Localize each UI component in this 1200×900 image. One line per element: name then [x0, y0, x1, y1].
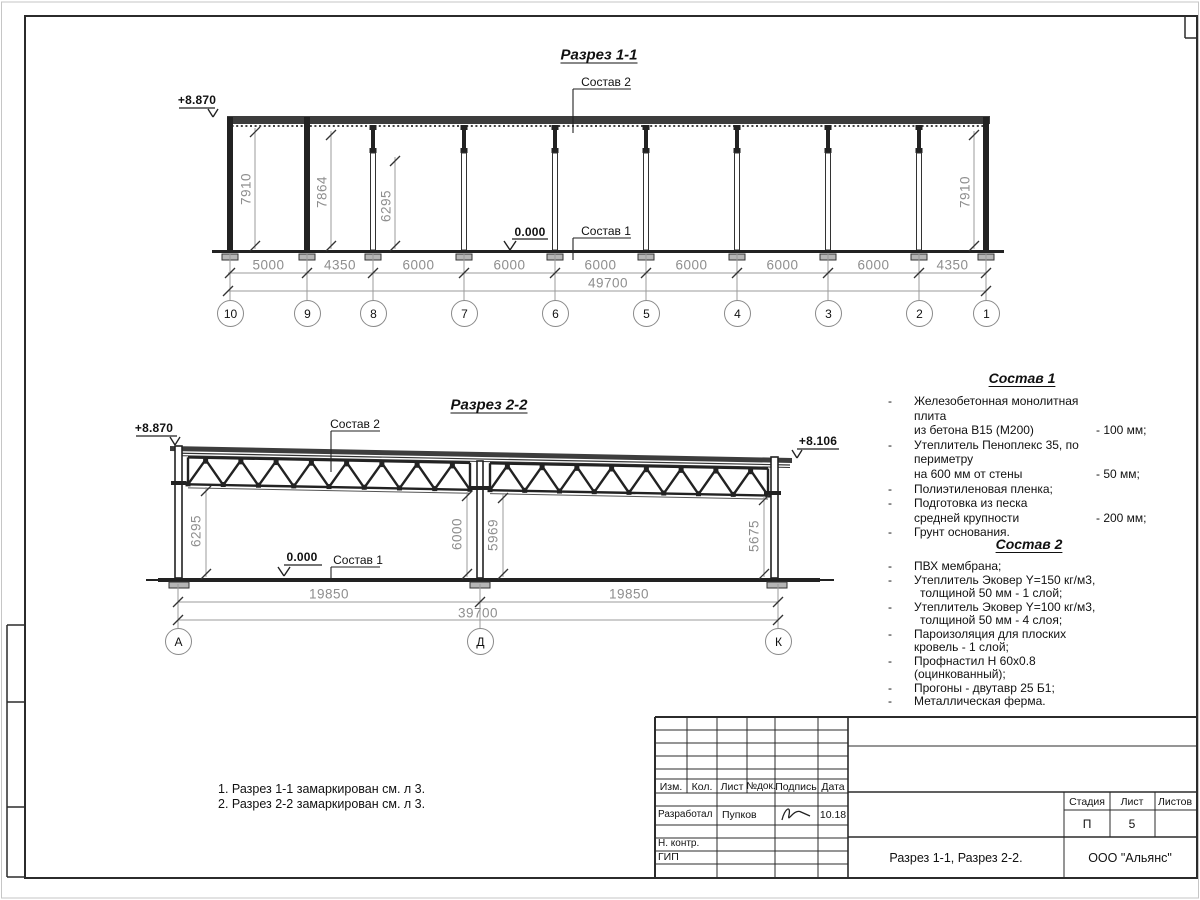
sostav-value [1110, 560, 1174, 574]
sostav-row: -Прогоны - двутавр 25 Б1; [884, 682, 1174, 696]
note-line: 2. Разрез 2-2 замаркирован см. л 3. [218, 797, 425, 812]
sostav-row: -Утеплитель Пеноплекс 35, по периметру [884, 438, 1160, 467]
grid-bubble: 9 [294, 300, 321, 327]
dim-vertical: 7910 [958, 176, 972, 208]
dim-total: 49700 [588, 276, 628, 290]
sostav1-title: Состав 1 [884, 370, 1160, 386]
section2-zero-level: 0.000 [286, 551, 317, 563]
tb-role-developed: Разработал [658, 810, 712, 820]
sostav-value [1096, 438, 1160, 467]
tb-col-ndok: №док. [746, 782, 775, 792]
dim-value: 6000 [675, 258, 707, 272]
sostav-dash: - [884, 394, 914, 423]
grid-bubble: Д [467, 628, 494, 655]
sostav-value [1110, 614, 1174, 628]
section2-elevation-left: +8.870 [135, 422, 173, 434]
sostav-value [1110, 574, 1174, 588]
dim-value: 6000 [766, 258, 798, 272]
tb-sheet-value: 5 [1129, 818, 1136, 830]
grid-bubble: 3 [815, 300, 842, 327]
sostav-value: - 100 мм; [1096, 423, 1160, 438]
sostav-text: Профнастил Н 60х0.8 (оцинкованный); [914, 655, 1110, 682]
sostav-text: Железобетонная монолитная плита [914, 394, 1096, 423]
section2-sostav1-label: Состав 1 [333, 554, 383, 566]
sostav2-block: Состав 2 -ПВХ мембрана;-Утеплитель Экове… [884, 536, 1174, 709]
sostav-value [1110, 655, 1174, 682]
tb-role-gip: ГИП [658, 852, 679, 863]
dim-value: 19850 [309, 587, 349, 601]
tb-col-kol: Кол. [692, 782, 713, 793]
sostav-dash: - [884, 655, 914, 682]
sostav-text: толщиной 50 мм - 1 слой; [914, 587, 1110, 601]
dim-vertical: 6295 [379, 190, 393, 222]
grid-bubble: 8 [360, 300, 387, 327]
dim-vertical: 5675 [747, 520, 761, 552]
sostav-text: Металлическая ферма. [914, 695, 1110, 709]
sostav-row: -Профнастил Н 60х0.8 (оцинкованный); [884, 655, 1174, 682]
sostav-value [1110, 601, 1174, 615]
dim-value: 4350 [324, 258, 356, 272]
sostav-text: Прогоны - двутавр 25 Б1; [914, 682, 1110, 696]
tb-doc-title: Разрез 1-1, Разрез 2-2. [889, 852, 1022, 865]
sostav-dash: - [884, 682, 914, 696]
sostav-dash: - [884, 601, 914, 615]
tb-sheet-label: Лист [1121, 797, 1144, 808]
sostav-dash [884, 587, 914, 601]
sostav-row: -Пароизоляция для плоских кровель - 1 сл… [884, 628, 1174, 655]
sostav-row: -Железобетонная монолитная плита [884, 394, 1160, 423]
tb-role-ncontr: Н. контр. [658, 839, 699, 849]
dim-vertical: 7910 [239, 173, 253, 205]
dim-value: 6000 [584, 258, 616, 272]
sostav-text: Пароизоляция для плоских кровель - 1 сло… [914, 628, 1110, 655]
sostav-dash: - [884, 496, 914, 511]
tb-company: ООО "Альянс" [1088, 852, 1172, 865]
sostav1-rows: -Железобетонная монолитная плитаиз бетон… [884, 394, 1160, 540]
tb-sheets-label: Листов [1158, 797, 1192, 808]
grid-bubble: К [765, 628, 792, 655]
dim-vertical: 5969 [486, 519, 500, 551]
sostav-value [1110, 682, 1174, 696]
sostav-value [1110, 695, 1174, 709]
sostav-value [1096, 496, 1160, 511]
dim-vertical: 7864 [315, 176, 329, 208]
tb-col-list: Лист [721, 782, 744, 793]
sostav-row: -Металлическая ферма. [884, 695, 1174, 709]
sostav-text: средней крупности [914, 511, 1096, 526]
dim-value: 6000 [493, 258, 525, 272]
grid-bubble: 6 [542, 300, 569, 327]
section1-elevation-left: +8.870 [178, 94, 216, 106]
dim-value: 6000 [402, 258, 434, 272]
dim-value: 19850 [609, 587, 649, 601]
sostav-value [1110, 628, 1174, 655]
sostav-row: -Утеплитель Эковер Y=100 кг/м3, [884, 601, 1174, 615]
section2-title: Разрез 2-2 [450, 398, 527, 413]
tb-developer: Пупков [722, 810, 757, 821]
sostav-dash: - [884, 438, 914, 467]
sostav-dash: - [884, 695, 914, 709]
dim-total: 39700 [458, 606, 498, 620]
tb-col-podpis: Подпись [775, 782, 817, 793]
sostav-text: Полиэтиленовая пленка; [914, 482, 1096, 497]
section1-title: Разрез 1-1 [560, 48, 637, 63]
note-line: 1. Разрез 1-1 замаркирован см. л 3. [218, 782, 425, 797]
sostav-value [1110, 587, 1174, 601]
section2-elevation-right: +8.106 [799, 435, 837, 447]
grid-bubble: 5 [633, 300, 660, 327]
drawing-sheet: Разрез 1-1 Разрез 2-2 +8.870 0.000 Соста… [0, 0, 1200, 900]
grid-bubble: 10 [217, 300, 244, 327]
dim-vertical: 6295 [189, 515, 203, 547]
sostav1-block: Состав 1 -Железобетонная монолитная плит… [884, 370, 1160, 540]
grid-bubble: 1 [973, 300, 1000, 327]
section1-zero-level: 0.000 [514, 226, 545, 238]
sostav-row: на 600 мм от стены- 50 мм; [884, 467, 1160, 482]
labels-layer: Разрез 1-1 Разрез 2-2 +8.870 0.000 Соста… [0, 0, 1200, 900]
sostav-text: Утеплитель Эковер Y=150 кг/м3, [914, 574, 1110, 588]
sostav-text: толщиной 50 мм - 4 слоя; [914, 614, 1110, 628]
dim-value: 6000 [857, 258, 889, 272]
tb-date: 10.18 [820, 810, 846, 821]
sostav-text: из бетона В15 (М200) [914, 423, 1096, 438]
sostav-dash: - [884, 628, 914, 655]
grid-bubble: А [165, 628, 192, 655]
sostav-value [1096, 394, 1160, 423]
sostav2-title: Состав 2 [884, 536, 1174, 552]
sostav-row: -ПВХ мембрана; [884, 560, 1174, 574]
sostav-text: на 600 мм от стены [914, 467, 1096, 482]
sostav-row: из бетона В15 (М200)- 100 мм; [884, 423, 1160, 438]
tb-stage-value: П [1083, 818, 1092, 830]
grid-bubble: 7 [451, 300, 478, 327]
sostav-row: -Подготовка из песка [884, 496, 1160, 511]
sostav-text: ПВХ мембрана; [914, 560, 1110, 574]
sostav-value: - 200 мм; [1096, 511, 1160, 526]
sostav-row: толщиной 50 мм - 1 слой; [884, 587, 1174, 601]
sostav-text: Утеплитель Пеноплекс 35, по периметру [914, 438, 1096, 467]
sostav-dash: - [884, 574, 914, 588]
tb-stage-label: Стадия [1069, 797, 1105, 808]
dim-value: 5000 [252, 258, 284, 272]
sostav-row: средней крупности- 200 мм; [884, 511, 1160, 526]
sostav-dash [884, 423, 914, 438]
section1-sostav1-label: Состав 1 [581, 225, 631, 237]
sostav-dash [884, 614, 914, 628]
sostav-row: -Утеплитель Эковер Y=150 кг/м3, [884, 574, 1174, 588]
sostav-dash: - [884, 560, 914, 574]
sostav-dash [884, 511, 914, 526]
sostav2-rows: -ПВХ мембрана;-Утеплитель Эковер Y=150 к… [884, 560, 1174, 709]
sostav-value: - 50 мм; [1096, 467, 1160, 482]
tb-col-izm: Изм. [660, 782, 683, 793]
section1-sostav2-label: Состав 2 [581, 76, 631, 88]
sostav-text: Утеплитель Эковер Y=100 кг/м3, [914, 601, 1110, 615]
notes-block: 1. Разрез 1-1 замаркирован см. л 3. 2. Р… [218, 782, 425, 812]
sostav-row: толщиной 50 мм - 4 слоя; [884, 614, 1174, 628]
sostav-value [1096, 482, 1160, 497]
sostav-dash: - [884, 482, 914, 497]
dim-value: 4350 [936, 258, 968, 272]
sostav-row: -Полиэтиленовая пленка; [884, 482, 1160, 497]
tb-col-data: Дата [821, 782, 844, 793]
grid-bubble: 2 [906, 300, 933, 327]
section2-sostav2-label: Состав 2 [330, 418, 380, 430]
grid-bubble: 4 [724, 300, 751, 327]
sostav-dash [884, 467, 914, 482]
dim-vertical: 6000 [450, 518, 464, 550]
sostav-text: Подготовка из песка [914, 496, 1096, 511]
